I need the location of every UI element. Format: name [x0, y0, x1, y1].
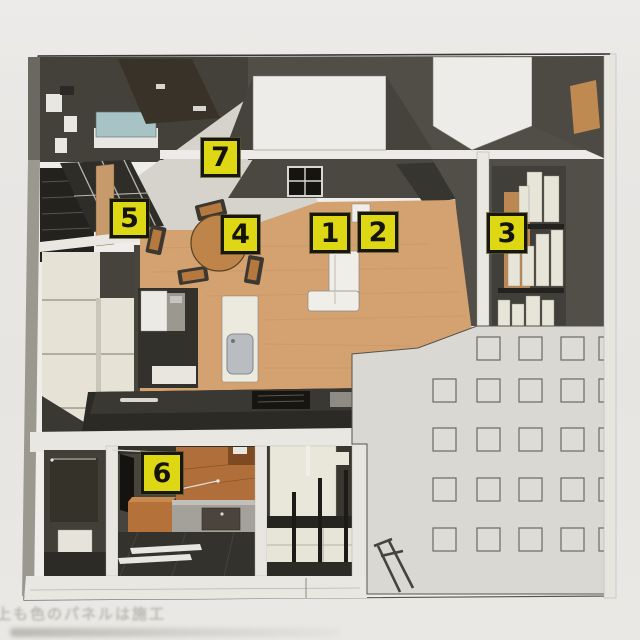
callout-marker-7: 7 — [201, 138, 240, 177]
closet-shelf-box — [46, 94, 62, 112]
floor-plan-rendering — [0, 0, 640, 640]
lower-level — [24, 428, 367, 600]
structural-post — [255, 446, 267, 576]
magazine-page: 1 2 3 4 5 6 7 上も色のパネルは施工 — [0, 0, 640, 640]
lower-room-left — [44, 450, 106, 576]
kitchen-island — [222, 296, 258, 382]
callout-marker-2: 2 — [358, 212, 398, 252]
upper-walls — [40, 56, 608, 162]
lower-room-right — [267, 446, 352, 576]
grid-wall — [352, 326, 622, 594]
cooktop — [252, 391, 310, 409]
tv-board — [138, 288, 198, 388]
callout-marker-1: 1 — [310, 213, 350, 253]
soffit-window — [288, 167, 322, 196]
structural-post — [106, 446, 118, 576]
outer-wall-right — [604, 54, 616, 598]
lower-kitchen — [112, 446, 255, 576]
faint-caption-text: 上も色のパネルは施工 — [0, 603, 396, 624]
wood-cabinet — [128, 502, 172, 532]
upper-cabinet-center — [253, 76, 386, 150]
callout-marker-4: 4 — [221, 215, 260, 254]
faint-caption-smudge — [10, 628, 340, 637]
island-sink — [227, 334, 253, 374]
wood-wall-sliver — [570, 80, 600, 134]
callout-marker-6: 6 — [141, 452, 183, 494]
callout-marker-5: 5 — [110, 199, 149, 238]
callout-marker-3: 3 — [487, 213, 527, 253]
structural-post — [352, 428, 367, 578]
